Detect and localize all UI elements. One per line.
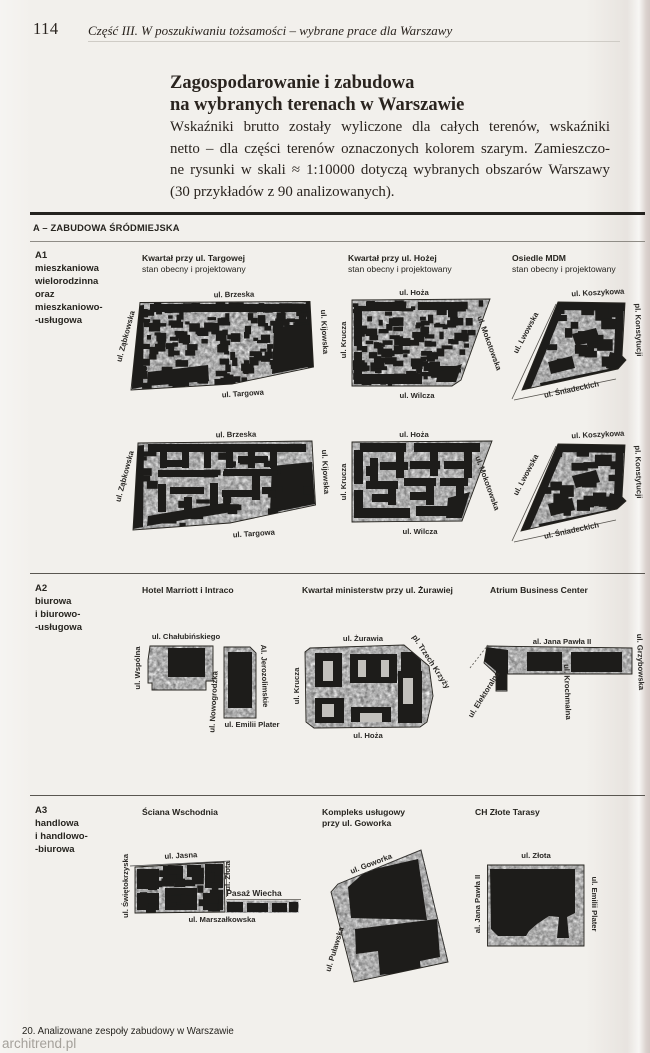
svg-text:ul. Targowa: ul. Targowa (232, 527, 275, 539)
svg-text:al. Jana Pawła II: al. Jana Pawła II (533, 637, 592, 646)
svg-text:ul. Targowa: ul. Targowa (221, 387, 264, 399)
svg-text:ul. Chałubińskiego: ul. Chałubińskiego (152, 632, 221, 641)
svg-text:ul. Emilii Plater: ul. Emilii Plater (590, 876, 599, 931)
svg-text:ul. Wilcza: ul. Wilcza (403, 527, 439, 536)
svg-text:ul. Koszykowa: ul. Koszykowa (571, 429, 625, 441)
svg-text:ul. Wilcza: ul. Wilcza (400, 391, 436, 400)
svg-text:al. Jana Pawła II: al. Jana Pawła II (473, 875, 482, 934)
svg-text:ul. Grzybowska: ul. Grzybowska (635, 634, 646, 691)
svg-text:ul. Puławska: ul. Puławska (324, 925, 346, 972)
svg-text:ul. Złota: ul. Złota (521, 851, 551, 860)
svg-text:ul. Lwowska: ul. Lwowska (511, 452, 541, 497)
svg-text:ul. Kijowska: ul. Kijowska (319, 309, 330, 355)
svg-text:ul. Złota: ul. Złota (223, 861, 232, 891)
svg-text:ul. Lwowska: ul. Lwowska (511, 310, 541, 355)
svg-text:ul. Krucza: ul. Krucza (340, 463, 348, 500)
svg-text:ul. Koszykowa: ul. Koszykowa (571, 287, 625, 299)
svg-text:ul. Wspólna: ul. Wspólna (133, 646, 142, 690)
svg-text:ul. Krochmalna: ul. Krochmalna (562, 664, 573, 721)
svg-text:Pasaż Wiecha: Pasaż Wiecha (226, 888, 282, 898)
svg-text:ul. Ząbkowska: ul. Ząbkowska (113, 449, 135, 503)
svg-text:ul. Nowogrodzka: ul. Nowogrodzka (207, 670, 219, 733)
svg-text:ul. Elektoralna: ul. Elektoralna (466, 669, 502, 719)
svg-text:Al. Jerozolimskie: Al. Jerozolimskie (259, 644, 270, 708)
svg-text:ul. Hoża: ul. Hoża (399, 430, 429, 439)
svg-text:ul. Jasna: ul. Jasna (164, 850, 198, 861)
svg-text:ul. Brzeska: ul. Brzeska (216, 430, 257, 440)
svg-text:ul. Ząbkowska: ul. Ząbkowska (114, 309, 136, 363)
svg-text:ul. Brzeska: ul. Brzeska (214, 290, 255, 300)
svg-text:ul. Krucza: ul. Krucza (340, 321, 348, 358)
svg-text:ul. Świętokrzyska: ul. Świętokrzyska (121, 853, 130, 918)
svg-text:pl. Konstytucji: pl. Konstytucji (633, 445, 644, 498)
svg-text:ul. Marszałkowska: ul. Marszałkowska (188, 915, 256, 924)
svg-text:ul. Mokotowska: ul. Mokotowska (473, 455, 501, 513)
svg-text:ul. Hoża: ul. Hoża (399, 288, 429, 297)
svg-text:ul. Mokotowska: ul. Mokotowska (475, 315, 503, 373)
svg-text:ul. Emilii Plater: ul. Emilii Plater (224, 720, 279, 729)
svg-text:ul. Kijowska: ul. Kijowska (320, 449, 331, 495)
svg-text:pl. Konstytucji: pl. Konstytucji (633, 303, 644, 356)
